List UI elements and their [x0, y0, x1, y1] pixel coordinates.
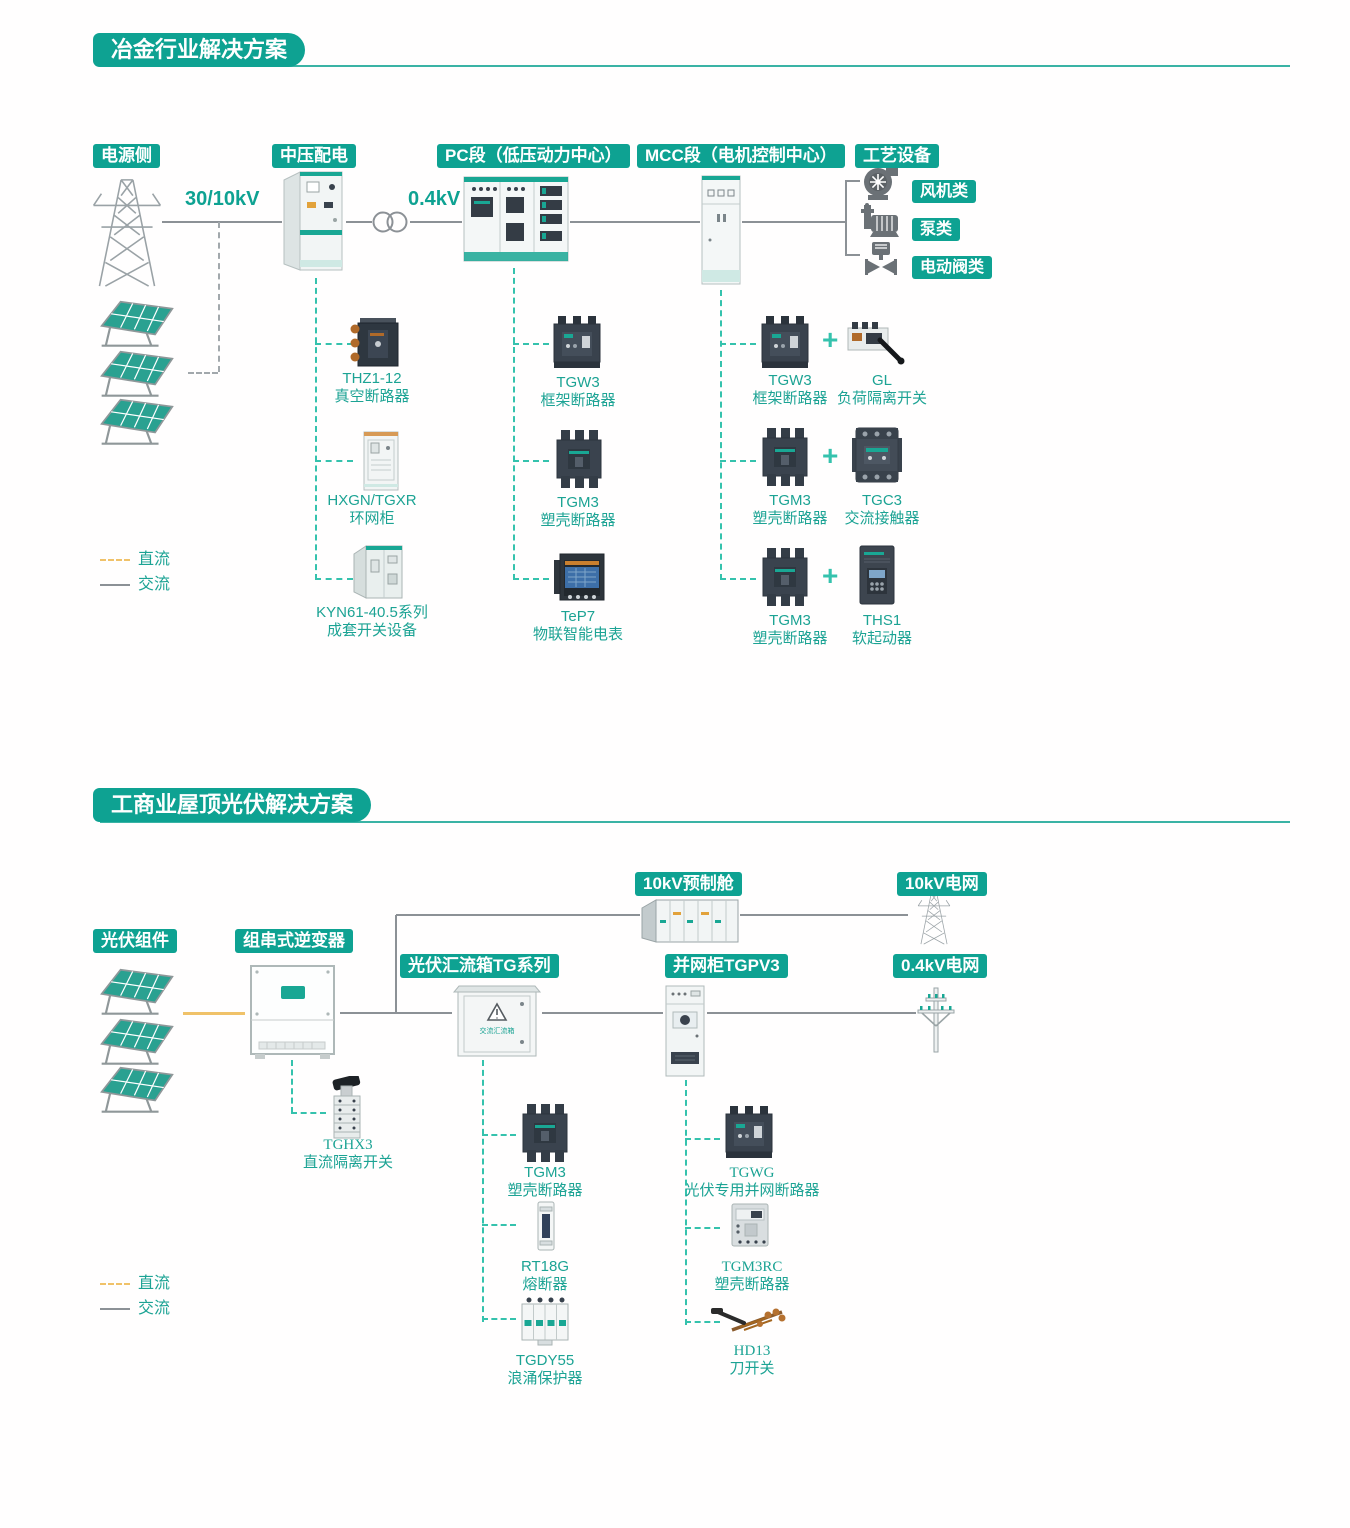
pump-icon — [858, 203, 902, 241]
equip-model: HXGN/TGXR — [297, 492, 447, 510]
legend-dc-line — [100, 1283, 130, 1285]
equip-model: TGM3 — [503, 494, 653, 512]
solar-panel-icon — [98, 300, 176, 350]
header-grid-10kv: 10kV电网 — [897, 872, 987, 896]
molded-breaker-image — [554, 430, 604, 488]
mcc-cabinet-image — [700, 170, 742, 290]
header-grid-04kv: 0.4kV电网 — [893, 954, 987, 978]
equip-caption-tgc3: TGC3 交流接触器 — [817, 492, 947, 528]
fan-icon — [860, 164, 900, 202]
ac-line-prefab-to-tower — [740, 914, 908, 916]
equip-model: TeP7 — [503, 608, 653, 626]
switchgear-set-image — [350, 540, 406, 600]
equip-model: TGHX3 — [273, 1136, 423, 1154]
ring-main-unit-image — [360, 428, 402, 492]
plus-sign: + — [822, 562, 838, 590]
knife-switch-image — [710, 1300, 790, 1336]
equip-caption-hd13: HD13 刀开关 — [667, 1342, 837, 1378]
mcc-branch-1 — [720, 343, 756, 345]
equip-caption-gl: GL 负荷隔离开关 — [817, 372, 947, 408]
section1-title: 冶金行业解决方案 — [93, 33, 305, 67]
equip-caption-thz1: THZ1-12 真空断路器 — [297, 370, 447, 406]
ac-line-pc-to-mcc — [570, 221, 700, 223]
equip-model: HD13 — [667, 1342, 837, 1360]
equip-model: TGWG — [667, 1164, 837, 1182]
voltage-label-lv: 0.4kV — [408, 188, 460, 211]
legend-ac-label: 交流 — [138, 577, 170, 593]
solar-feed-dashed-riser — [218, 222, 220, 372]
mv-branch-3 — [315, 578, 353, 580]
legend-dc-line — [100, 559, 130, 561]
mv-branch-2 — [315, 460, 353, 462]
equip-caption-tgm3-s2: TGM3 塑壳断路器 — [470, 1164, 620, 1200]
smart-meter-image — [552, 552, 606, 604]
equip-name: 塑壳断路器 — [667, 1276, 837, 1294]
solar-panel-icon — [98, 1066, 176, 1116]
combiner-box-icon — [452, 982, 542, 1060]
motor-valve-icon — [862, 240, 900, 278]
residual-current-breaker-image — [728, 1200, 772, 1250]
equip-model: TGM3 — [470, 1164, 620, 1182]
load-isolation-switch-image — [846, 320, 906, 366]
plus-sign: + — [822, 442, 838, 470]
equip-caption-tgm3-pc: TGM3 塑壳断路器 — [503, 494, 653, 530]
inverter-dashed-stub — [291, 1112, 326, 1114]
frame-breaker-image — [720, 1104, 778, 1160]
equip-name: 交流接触器 — [817, 510, 947, 528]
plus-sign: + — [822, 326, 838, 354]
header-process-equipment: 工艺设备 — [855, 144, 939, 168]
ac-line-mcc-to-loads — [742, 221, 845, 223]
mcc-column-dashed-line — [720, 290, 722, 580]
equip-caption-tep7: TeP7 物联智能电表 — [503, 608, 653, 644]
load-label-fans: 风机类 — [912, 180, 976, 203]
equip-caption-tgm3rc: TGM3RC 塑壳断路器 — [667, 1258, 837, 1294]
equip-model: TGW3 — [503, 374, 653, 392]
solar-panel-icon — [98, 1018, 176, 1068]
equip-caption-tgw3-pc: TGW3 框架断路器 — [503, 374, 653, 410]
grid-connection-cabinet-image — [663, 982, 707, 1080]
load-stub-valve — [845, 254, 860, 256]
transmission-tower-icon — [908, 890, 960, 946]
mcc-branch-2 — [720, 460, 756, 462]
equip-name: 直流隔离开关 — [273, 1154, 423, 1172]
header-combiner-box: 光伏汇流箱TG系列 — [400, 954, 559, 978]
equip-model: GL — [817, 372, 947, 390]
equip-name: 软起动器 — [817, 630, 947, 648]
ac-line-inverter-to-combiner — [340, 1012, 452, 1014]
grid-cabinet-branch-1 — [685, 1138, 720, 1140]
equip-caption-tghx3: TGHX3 直流隔离开关 — [273, 1136, 423, 1172]
legend-dc-label: 直流 — [138, 552, 170, 568]
mcc-branch-3 — [720, 578, 756, 580]
equip-name: 塑壳断路器 — [503, 512, 653, 530]
prefab-substation-icon — [640, 894, 740, 944]
legend-dc-label: 直流 — [138, 1276, 170, 1292]
soft-starter-image — [856, 544, 898, 606]
header-mcc-section: MCC段（电机控制中心） — [637, 144, 845, 168]
dc-isolator-image — [326, 1076, 366, 1140]
equip-name: 真空断路器 — [297, 388, 447, 406]
equip-model: TGM3RC — [667, 1258, 837, 1276]
frame-breaker-image — [550, 314, 604, 370]
load-label-pumps: 泵类 — [912, 218, 960, 241]
equip-model: KYN61-40.5系列 — [297, 604, 447, 622]
ac-riser-line — [395, 915, 397, 1013]
equip-name: 框架断路器 — [503, 392, 653, 410]
transformer-icon — [370, 210, 410, 234]
header-mv-distribution: 中压配电 — [272, 144, 356, 168]
pc-branch-1 — [513, 343, 549, 345]
combiner-branch-1 — [482, 1134, 516, 1136]
combiner-branch-3 — [482, 1318, 516, 1320]
pc-branch-2 — [513, 460, 549, 462]
inverter-dashed-drop — [291, 1060, 293, 1113]
equip-name: 浪涌保护器 — [470, 1370, 620, 1388]
frame-breaker-image — [758, 314, 812, 370]
equip-name: 负荷隔离开关 — [817, 390, 947, 408]
solar-panel-icon — [98, 350, 176, 400]
legend-ac-line — [100, 584, 130, 586]
equip-caption-ths1: THS1 软起动器 — [817, 612, 947, 648]
mv-column-dashed-line — [315, 278, 317, 580]
vacuum-breaker-image — [348, 316, 400, 370]
combiner-branch-2 — [482, 1224, 516, 1226]
ac-line-riser-to-prefab — [396, 914, 640, 916]
equip-name: 熔断器 — [470, 1276, 620, 1294]
equip-name: 成套开关设备 — [297, 622, 447, 640]
solar-panel-icon — [98, 968, 176, 1018]
pc-switchgear-image — [462, 173, 570, 265]
equip-name: 光伏专用并网断路器 — [667, 1182, 837, 1200]
ac-line-combiner-to-cabinet — [542, 1012, 663, 1014]
string-inverter-icon — [245, 962, 340, 1060]
equip-model: TGC3 — [817, 492, 947, 510]
equip-model: RT18G — [470, 1258, 620, 1276]
equip-name: 塑壳断路器 — [470, 1182, 620, 1200]
molded-breaker-image — [760, 548, 810, 606]
header-pv-modules: 光伏组件 — [93, 929, 177, 953]
transmission-tower-icon — [86, 172, 168, 290]
equip-caption-kyn61: KYN61-40.5系列 成套开关设备 — [297, 604, 447, 640]
header-grid-cabinet: 并网柜TGPV3 — [665, 954, 788, 978]
solar-feed-dashed-stub — [188, 372, 218, 374]
molded-breaker-image — [516, 1104, 574, 1162]
fuse-image — [534, 1200, 558, 1252]
dc-line-pv-to-inverter — [183, 1012, 245, 1015]
equip-caption-rt18g: RT18G 熔断器 — [470, 1258, 620, 1294]
surge-protector-image — [520, 1296, 570, 1346]
mv-cabinet-image — [280, 170, 346, 272]
molded-breaker-image — [760, 428, 810, 486]
pc-branch-3 — [513, 578, 549, 580]
solutions-page: 冶金行业解决方案 电源侧 中压配电 PC段（低压动力中心） MCC段（电机控制中… — [0, 0, 1350, 1528]
combiner-box-text: 交流汇流箱 — [467, 1028, 527, 1035]
header-power-source: 电源侧 — [93, 144, 160, 168]
voltage-label-hv: 30/10kV — [185, 188, 260, 211]
equip-name: 刀开关 — [667, 1360, 837, 1378]
equip-model: THS1 — [817, 612, 947, 630]
solar-panel-icon — [98, 398, 176, 448]
header-prefab-cabin: 10kV预制舱 — [635, 872, 742, 896]
equip-name: 环网柜 — [297, 510, 447, 528]
section2-title: 工商业屋顶光伏解决方案 — [93, 788, 371, 822]
utility-pole-icon — [914, 984, 958, 1056]
ac-line-mv-to-transformer — [346, 221, 372, 223]
ac-line-tower-to-mv — [162, 221, 282, 223]
load-stub-fan — [845, 180, 860, 182]
equip-caption-hxgn: HXGN/TGXR 环网柜 — [297, 492, 447, 528]
ac-line-transformer-to-pc — [410, 221, 462, 223]
loads-bracket-line — [845, 181, 847, 255]
pc-column-dashed-line — [513, 268, 515, 580]
load-label-valves: 电动阀类 — [912, 256, 992, 279]
header-string-inverter: 组串式逆变器 — [235, 929, 353, 953]
equip-caption-tgwg: TGWG 光伏专用并网断路器 — [667, 1164, 837, 1200]
equip-caption-tgdy55: TGDY55 浪涌保护器 — [470, 1352, 620, 1388]
ac-line-cabinet-to-pole — [707, 1012, 916, 1014]
legend-ac-label: 交流 — [138, 1301, 170, 1317]
header-pc-section: PC段（低压动力中心） — [437, 144, 630, 168]
legend-ac-line — [100, 1308, 130, 1310]
ac-contactor-image — [850, 424, 904, 486]
equip-model: TGDY55 — [470, 1352, 620, 1370]
grid-cabinet-branch-2 — [685, 1227, 720, 1229]
equip-name: 物联智能电表 — [503, 626, 653, 644]
equip-model: THZ1-12 — [297, 370, 447, 388]
